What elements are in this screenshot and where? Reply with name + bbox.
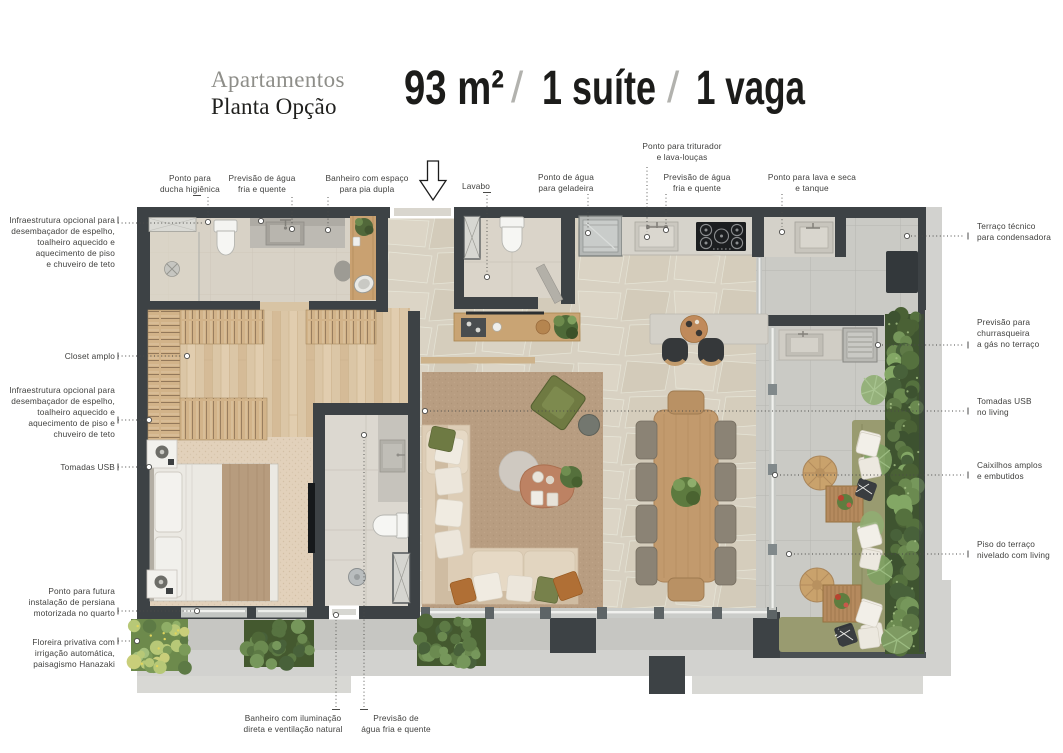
svg-text:ducha higiênica: ducha higiênica: [160, 184, 220, 194]
svg-text:Ponto para futura: Ponto para futura: [48, 586, 115, 596]
svg-text:chuveiro de teto: chuveiro de teto: [54, 429, 116, 439]
svg-text:e chuveiro de teto: e chuveiro de teto: [46, 259, 115, 269]
svg-text:Floreira privativa com: Floreira privativa com: [32, 637, 115, 647]
svg-text:fria e quente: fria e quente: [238, 184, 286, 194]
svg-text:93 m²: 93 m²: [404, 62, 504, 115]
svg-text:Planta Opção: Planta Opção: [211, 94, 337, 119]
svg-text:desembaçador de espelho,: desembaçador de espelho,: [11, 396, 115, 406]
svg-text:e embutidos: e embutidos: [977, 471, 1024, 481]
svg-text:Banheiro com iluminação: Banheiro com iluminação: [245, 713, 342, 723]
svg-text:direta e ventilação natural: direta e ventilação natural: [243, 724, 342, 734]
svg-text:a gás no terraço: a gás no terraço: [977, 339, 1040, 349]
svg-text:Ponto para: Ponto para: [169, 173, 211, 183]
svg-text:irrigação automática,: irrigação automática,: [35, 648, 115, 658]
svg-text:e tanque: e tanque: [795, 183, 829, 193]
svg-text:1 vaga: 1 vaga: [696, 62, 805, 115]
svg-text:churrasqueira: churrasqueira: [977, 328, 1030, 338]
svg-text:Previsão para: Previsão para: [977, 317, 1030, 327]
svg-text:para pia dupla: para pia dupla: [340, 184, 395, 194]
svg-text:Tomadas USB: Tomadas USB: [977, 396, 1032, 406]
svg-text:nivelado com living: nivelado com living: [977, 550, 1050, 560]
svg-text:para condensadora: para condensadora: [977, 232, 1051, 242]
svg-text:aquecimento de piso: aquecimento de piso: [36, 248, 116, 258]
svg-text:Ponto para triturador: Ponto para triturador: [642, 141, 721, 151]
svg-text:aquecimento de piso e: aquecimento de piso e: [28, 418, 115, 428]
svg-text:Apartamentos: Apartamentos: [211, 67, 345, 92]
svg-text:Terraço técnico: Terraço técnico: [977, 221, 1036, 231]
svg-text:Ponto para lava e seca: Ponto para lava e seca: [768, 172, 856, 182]
svg-text:Previsão de água: Previsão de água: [229, 173, 296, 183]
svg-text:e lava-louças: e lava-louças: [657, 152, 708, 162]
svg-text:fria e quente: fria e quente: [673, 183, 721, 193]
svg-text:Previsão de: Previsão de: [373, 713, 419, 723]
svg-text:Closet amplo: Closet amplo: [65, 351, 115, 361]
svg-text:desembaçador de espelho,: desembaçador de espelho,: [11, 226, 115, 236]
svg-text:Previsão de água: Previsão de água: [664, 172, 731, 182]
svg-text:Banheiro com espaço: Banheiro com espaço: [325, 173, 408, 183]
svg-text:Ponto de água: Ponto de água: [538, 172, 594, 182]
svg-text:paisagismo Hanazaki: paisagismo Hanazaki: [33, 659, 115, 669]
svg-text:/: /: [667, 63, 680, 112]
svg-text:Infraestrutura opcional para: Infraestrutura opcional para: [9, 215, 115, 225]
svg-text:água fria e quente: água fria e quente: [361, 724, 431, 734]
svg-text:Piso do terraço: Piso do terraço: [977, 539, 1035, 549]
svg-text:Infraestrutura opcional para: Infraestrutura opcional para: [9, 385, 115, 395]
svg-text:1 suíte: 1 suíte: [542, 62, 656, 115]
svg-text:Caixilhos amplos: Caixilhos amplos: [977, 460, 1042, 470]
svg-text:toalheiro aquecido e: toalheiro aquecido e: [37, 237, 115, 247]
svg-text:Tomadas USB: Tomadas USB: [60, 462, 115, 472]
svg-text:toalheiro aquecido e: toalheiro aquecido e: [37, 407, 115, 417]
svg-text:Lavabo: Lavabo: [462, 181, 490, 191]
svg-text:motorizada no quarto: motorizada no quarto: [34, 608, 116, 618]
svg-text:/: /: [511, 63, 524, 112]
svg-text:para geladeira: para geladeira: [538, 183, 593, 193]
svg-text:instalação de persiana: instalação de persiana: [29, 597, 116, 607]
svg-text:no living: no living: [977, 407, 1009, 417]
